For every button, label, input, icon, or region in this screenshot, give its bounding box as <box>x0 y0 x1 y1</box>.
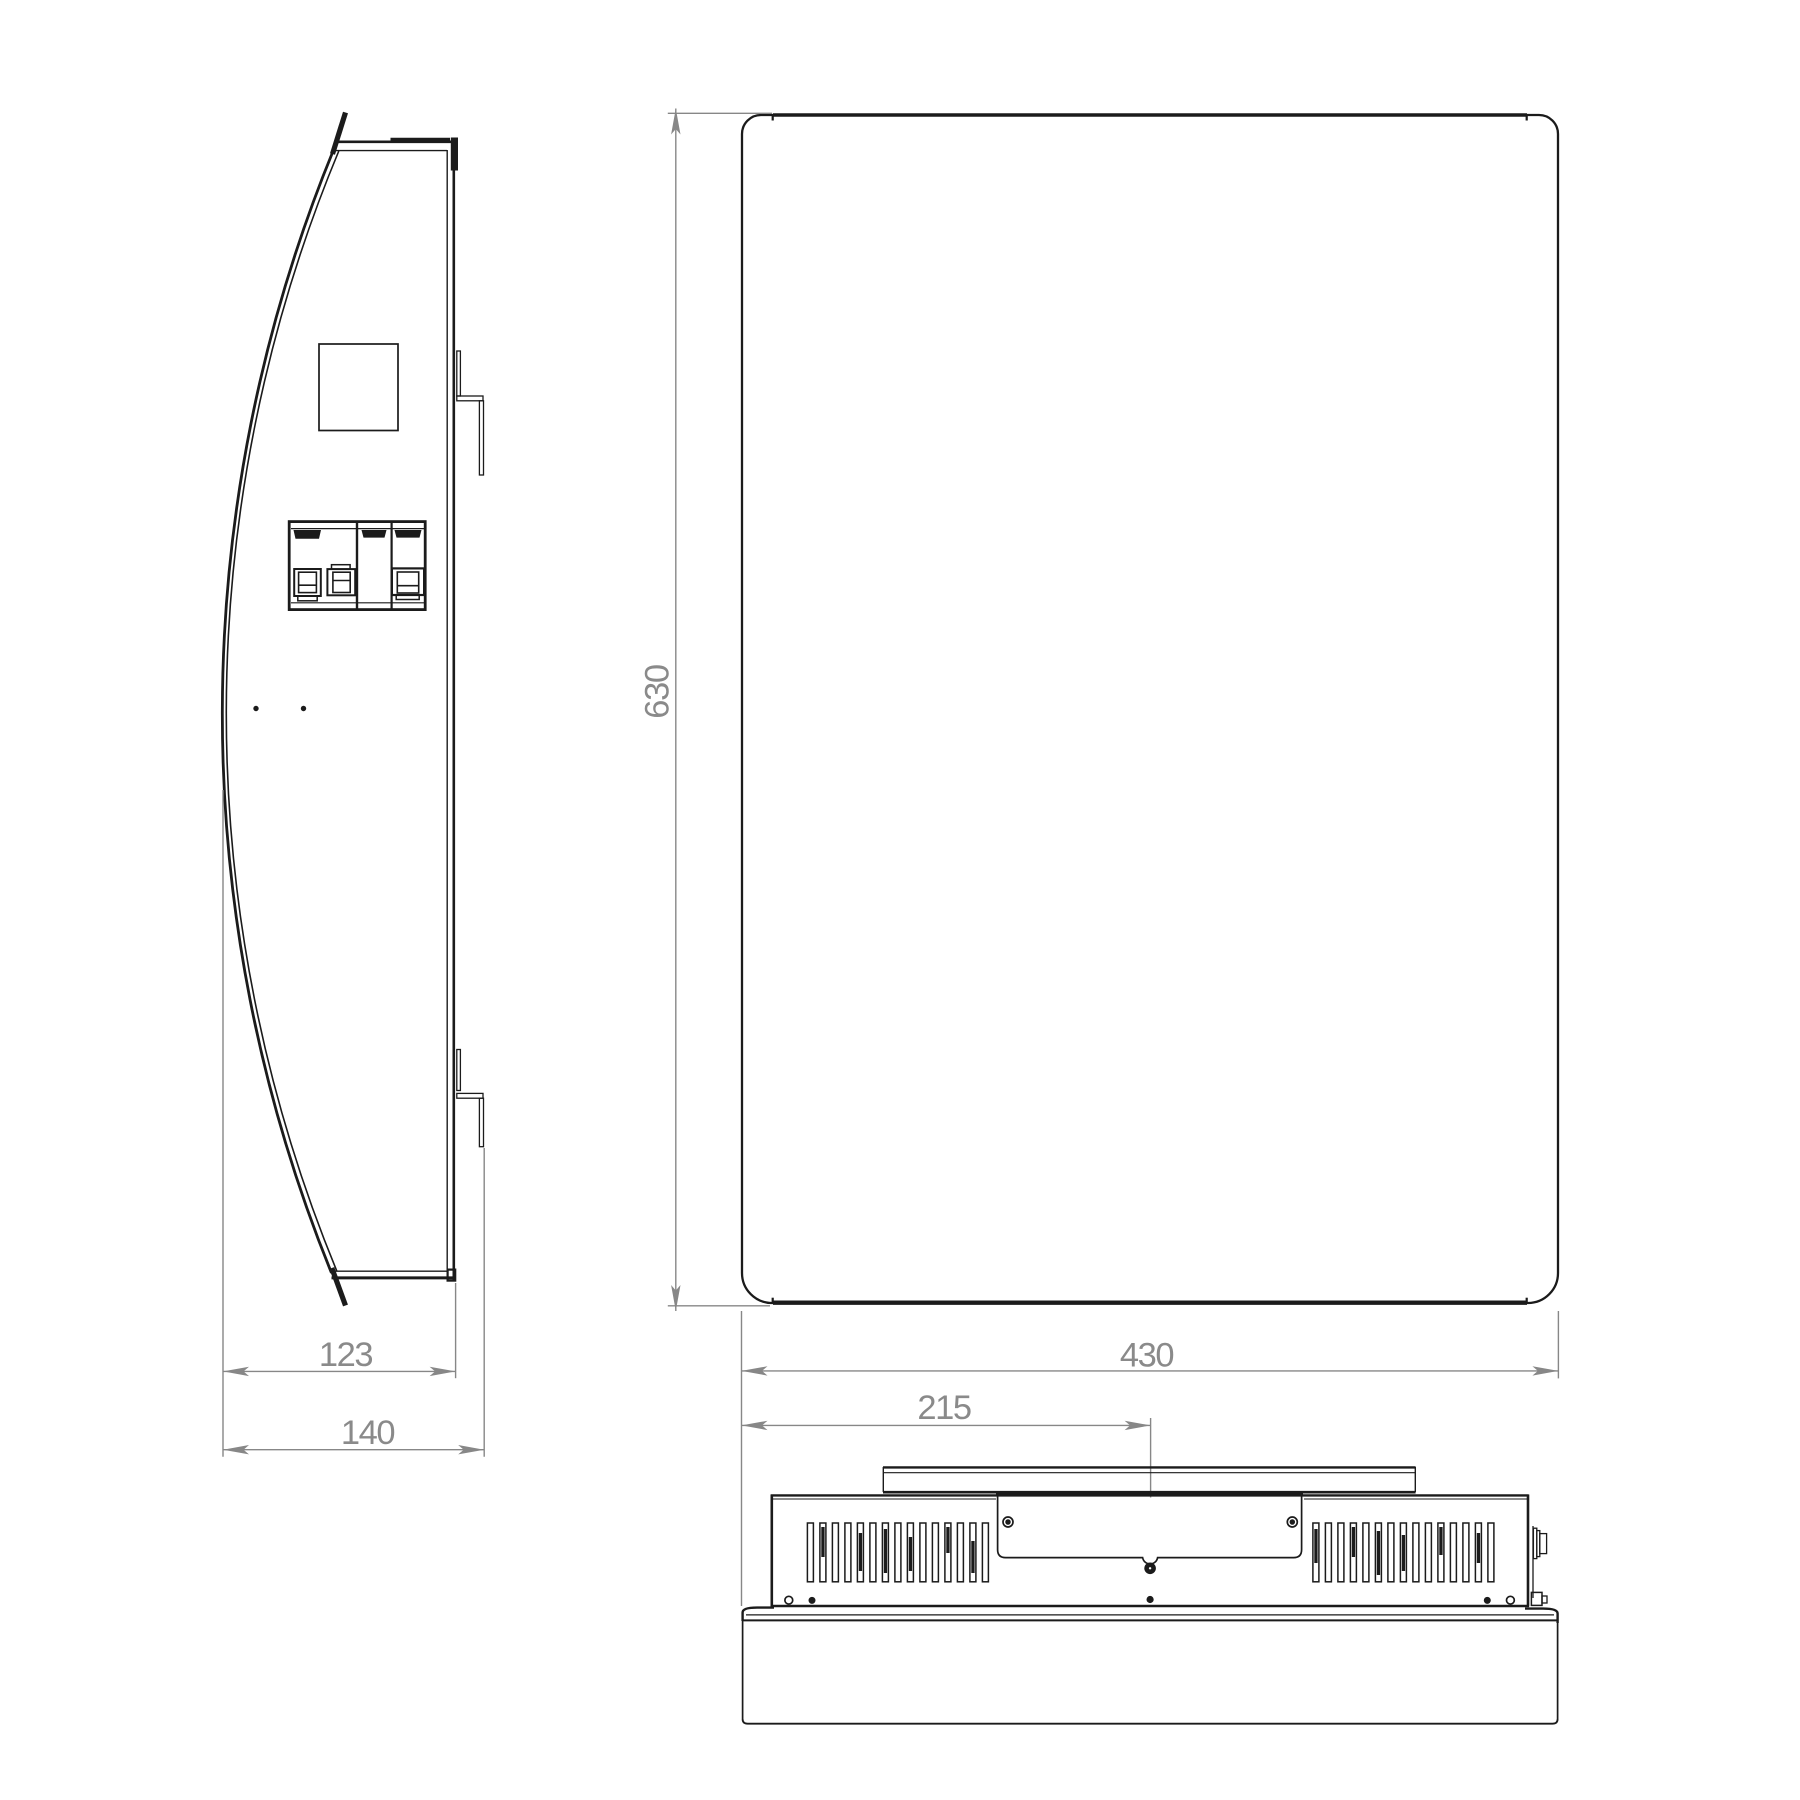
svg-text:215: 215 <box>917 1389 971 1427</box>
svg-text:140: 140 <box>341 1414 395 1452</box>
svg-text:630: 630 <box>639 665 677 719</box>
svg-text:123: 123 <box>319 1336 373 1374</box>
svg-text:430: 430 <box>1120 1336 1174 1374</box>
